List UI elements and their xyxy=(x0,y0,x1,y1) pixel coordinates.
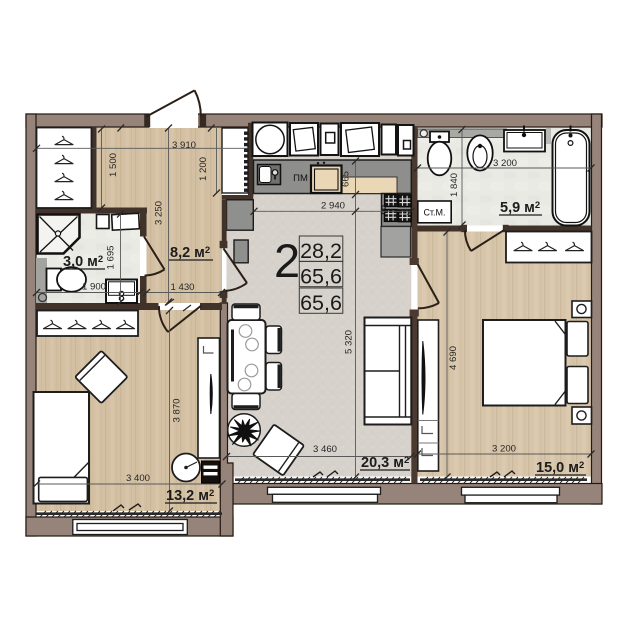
svg-text:3 250: 3 250 xyxy=(154,201,165,225)
svg-text:1 840: 1 840 xyxy=(449,173,460,197)
svg-text:13,2 м2: 13,2 м2 xyxy=(166,488,214,504)
svg-text:5,9 м2: 5,9 м2 xyxy=(500,200,540,216)
svg-text:15,0 м2: 15,0 м2 xyxy=(536,460,584,476)
svg-text:5 320: 5 320 xyxy=(344,330,355,354)
svg-text:Ст.М.: Ст.М. xyxy=(423,208,445,218)
svg-text:65,6: 65,6 xyxy=(300,265,342,289)
svg-text:1 430: 1 430 xyxy=(170,282,194,293)
svg-text:1 500: 1 500 xyxy=(108,153,119,177)
svg-text:665: 665 xyxy=(341,171,352,187)
svg-text:28,2: 28,2 xyxy=(300,239,342,263)
svg-text:4 690: 4 690 xyxy=(448,346,459,370)
svg-text:8,2 м2: 8,2 м2 xyxy=(170,245,210,261)
svg-text:1 695: 1 695 xyxy=(106,245,117,269)
svg-text:3 200: 3 200 xyxy=(492,444,516,455)
svg-text:3,0 м2: 3,0 м2 xyxy=(63,254,103,270)
svg-text:65,6: 65,6 xyxy=(300,291,342,315)
svg-text:ПМ: ПМ xyxy=(293,173,308,184)
svg-text:3 910: 3 910 xyxy=(172,140,196,151)
svg-text:3 870: 3 870 xyxy=(172,398,183,422)
svg-text:2: 2 xyxy=(274,234,300,287)
svg-text:20,3 м2: 20,3 м2 xyxy=(361,455,409,471)
svg-text:3 460: 3 460 xyxy=(313,444,337,455)
svg-text:3 200: 3 200 xyxy=(493,158,517,169)
svg-text:2 940: 2 940 xyxy=(321,201,345,212)
svg-text:1 900: 1 900 xyxy=(82,282,106,293)
svg-text:3 400: 3 400 xyxy=(126,473,150,484)
svg-text:1 200: 1 200 xyxy=(198,157,209,181)
